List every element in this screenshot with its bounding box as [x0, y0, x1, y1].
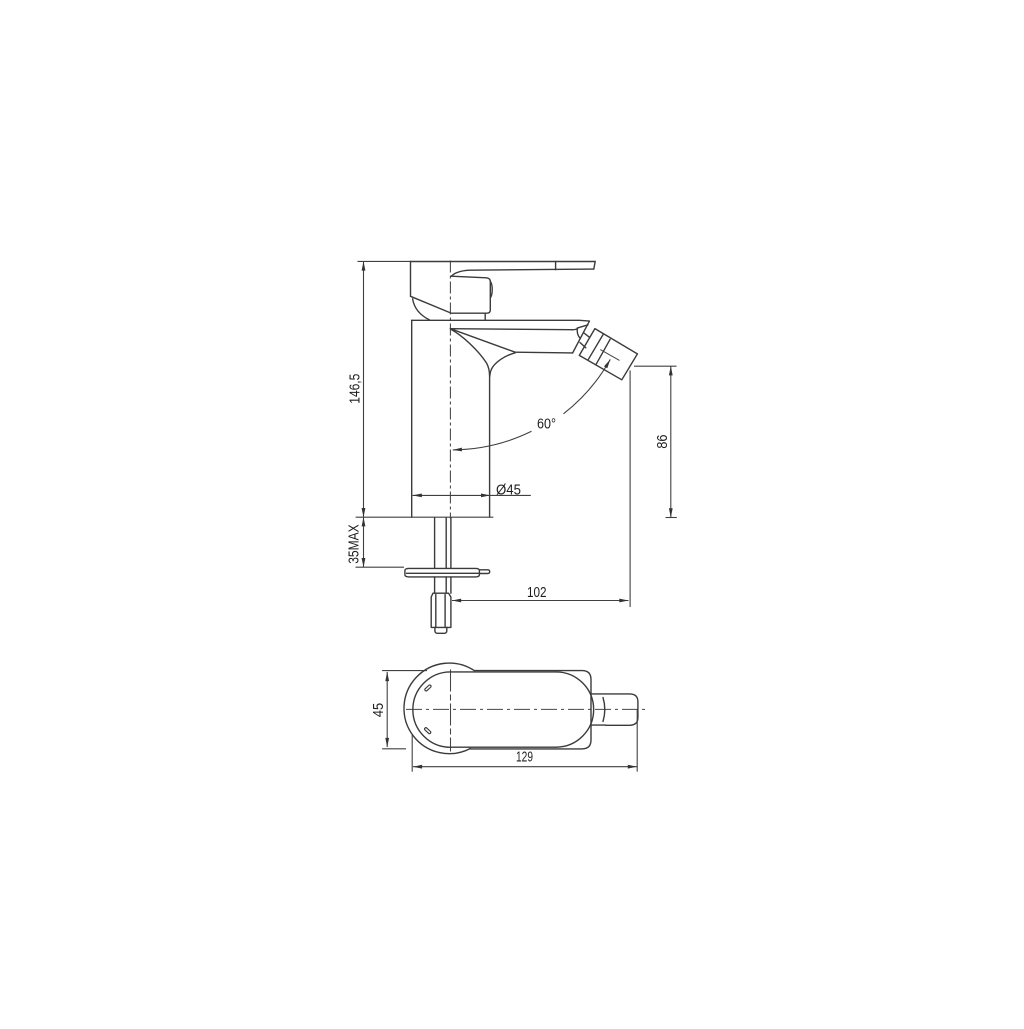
svg-text:102: 102 — [527, 585, 547, 601]
svg-text:129: 129 — [516, 750, 533, 766]
svg-text:Ø45: Ø45 — [496, 482, 521, 498]
svg-text:60°: 60° — [537, 417, 556, 433]
svg-text:45: 45 — [371, 703, 387, 717]
svg-text:86: 86 — [655, 435, 671, 449]
svg-text:146,5: 146,5 — [348, 374, 364, 404]
svg-text:35MAX: 35MAX — [347, 524, 363, 564]
